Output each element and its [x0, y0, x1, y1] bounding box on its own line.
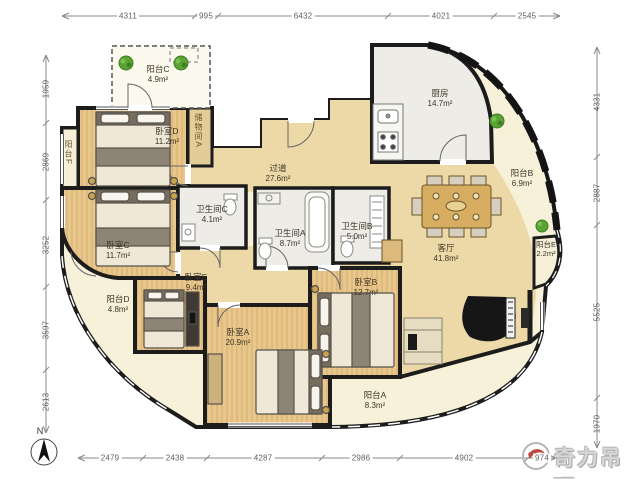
room-name: 卫生间C [196, 204, 228, 215]
bed-bedroom-d [89, 112, 178, 186]
room-area: 4.1m² [196, 215, 228, 225]
floor-plan-canvas: 4311 995 6432 4021 2545 2479 2438 4287 2… [0, 0, 640, 479]
dim-bottom-3: 4287 [252, 454, 275, 463]
room-area: 27.6m² [266, 174, 291, 184]
room-name: 厨房 [428, 88, 453, 99]
room-label-bedroom-b: 卧室B 12.7m² [354, 277, 379, 298]
room-label-bathroom-b: 卫生间B 5.0m² [341, 221, 372, 242]
room-name: 阳台B [511, 168, 534, 179]
dim-right-4: 1970 [593, 413, 602, 436]
room-area: 5.0m² [341, 232, 372, 242]
room-area: 14.7m² [428, 99, 453, 109]
bed-bedroom-b [312, 286, 395, 375]
dim-top-1: 4311 [117, 12, 139, 21]
room-label-bedroom-c: 卧室C 11.7m² [106, 240, 130, 261]
room-name: 卫生间A [274, 228, 305, 239]
dim-right-1: 4331 [593, 91, 602, 114]
bed-bedroom-c [89, 190, 178, 266]
room-area: 4.8m² [106, 305, 129, 315]
room-name: 阳台E [536, 240, 556, 249]
room-name: 卫生间B [341, 221, 372, 232]
dim-top-5: 2545 [516, 12, 539, 21]
room-label-bathroom-c: 卫生间C 4.1m² [196, 204, 228, 225]
room-name: 卧室E [185, 272, 208, 283]
room-name: 卧室B [354, 277, 379, 288]
room-name: 卧室C [106, 240, 130, 251]
room-name: 阳台C [146, 64, 169, 75]
room-label-balcony-f: 阳台F [64, 140, 72, 165]
room-area: 12.7m² [354, 288, 379, 298]
room-label-kitchen: 厨房 14.7m² [428, 88, 453, 109]
dim-bottom-6: 974 [533, 454, 551, 463]
room-label-balcony-c: 阳台C 4.9m² [146, 64, 169, 85]
room-label-balcony-d: 阳台D 4.8m² [106, 294, 129, 315]
room-label-balcony-a: 阳台A 8.3m² [364, 390, 387, 411]
watermark-text: 奇力吊顶 [554, 442, 640, 479]
tv-cabinet [404, 318, 442, 364]
dim-bottom-5: 4902 [453, 454, 476, 463]
room-label-bathroom-a: 卫生间A 8.7m² [274, 228, 305, 249]
room-area: 11.2m² [155, 137, 179, 147]
dim-bottom-4: 2986 [350, 454, 373, 463]
room-name: 卧室A [226, 327, 251, 338]
dim-right-2: 2887 [593, 182, 602, 205]
room-label-storage-a: 储物间A [194, 113, 202, 148]
room-label-bedroom-e: 卧室E 9.4m² [185, 272, 208, 293]
dim-top-4: 4021 [430, 12, 453, 21]
room-area: 41.8m² [434, 254, 459, 264]
room-name: 过道 [266, 163, 291, 174]
room-label-corridor: 过道 27.6m² [266, 163, 291, 184]
room-label-bedroom-d: 卧室D 11.2m² [155, 126, 179, 147]
dim-left-1: 1959 [42, 78, 51, 101]
bed-bedroom-e [144, 290, 199, 348]
room-label-balcony-b: 阳台B 6.9m² [511, 168, 534, 189]
room-area: 4.9m² [146, 75, 169, 85]
room-area: 6.9m² [511, 179, 534, 189]
dim-right-3: 5525 [593, 301, 602, 324]
room-label-balcony-e: 阳台E 2.2m² [536, 240, 556, 259]
dim-left-5: 2613 [42, 391, 51, 414]
dim-top-2: 995 [197, 12, 215, 21]
room-name: 卧室D [155, 126, 179, 137]
dim-top-3: 6432 [292, 12, 315, 21]
compass-north-label: N [37, 426, 44, 436]
room-name: 阳台D [106, 294, 129, 305]
room-area: 8.7m² [274, 239, 305, 249]
dim-bottom-2: 2438 [164, 454, 187, 463]
room-name: 阳台A [364, 390, 387, 401]
dim-left-3: 3252 [42, 234, 51, 257]
room-label-bedroom-a: 卧室A 20.9m² [226, 327, 251, 348]
dining-table [412, 176, 501, 237]
dim-left-2: 2869 [42, 151, 51, 174]
kitchen-counter [373, 104, 403, 160]
compass-icon [31, 439, 57, 465]
room-name: 客厅 [434, 243, 459, 254]
room-area: 2.2m² [536, 249, 556, 258]
room-area: 11.7m² [106, 251, 130, 261]
dim-bottom-1: 2479 [99, 454, 122, 463]
dim-left-4: 3597 [42, 319, 51, 342]
room-area: 8.3m² [364, 401, 387, 411]
room-label-living-room: 客厅 41.8m² [434, 243, 459, 264]
room-area: 20.9m² [226, 338, 251, 348]
room-area: 9.4m² [185, 283, 208, 293]
